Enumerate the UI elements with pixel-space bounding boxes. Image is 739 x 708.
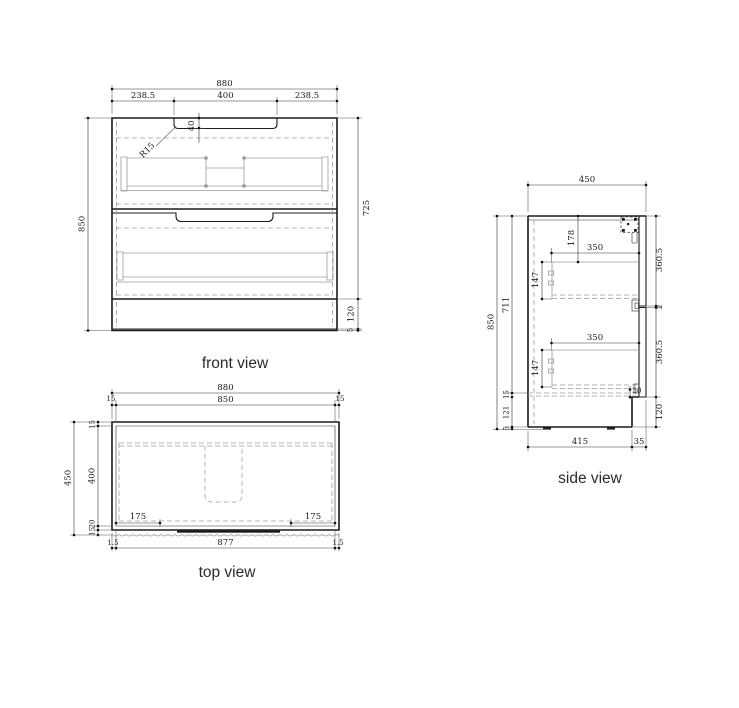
side-dim-drawer1-top: 178 [567, 230, 577, 246]
top-dim-edge-left: 15 [107, 395, 116, 403]
side-dim-kick-height: 121 [503, 406, 511, 419]
front-dim-total-width: 880 [216, 79, 232, 89]
side-dim-base-gap: 15 [503, 390, 511, 399]
side-dim-drawer1-depth: 350 [587, 243, 603, 253]
side-bracket-screw [627, 223, 629, 225]
side-drawer-runner-clip [549, 359, 554, 363]
side-upper-drawer-bottom [552, 295, 639, 299]
side-lower-drawer [552, 350, 639, 387]
side-view-label: side view [558, 470, 623, 487]
side-dim-drawer1-height: 147 [531, 272, 541, 288]
top-dim-inner-width: 850 [217, 395, 233, 405]
top-inner-wall [116, 426, 335, 526]
technical-drawing-page: 880 238.5 400 238.5 40 R15 850 725 120 5… [0, 0, 739, 708]
front-view: 880 238.5 400 238.5 40 R15 850 725 120 5… [78, 79, 373, 372]
side-panel-gap-bracket [632, 300, 639, 311]
side-bracket-screw [622, 229, 625, 232]
top-dim-edge-right: 15 [336, 395, 345, 403]
side-dim-total-height: 850 [487, 314, 497, 330]
side-bracket-body [632, 233, 637, 244]
side-dim-total-depth: 450 [579, 175, 595, 185]
side-foot [543, 427, 551, 430]
side-dim-drawer2-height: 147 [531, 360, 541, 376]
side-drawer-runner-clip [549, 271, 554, 275]
side-drawer-runner-clip [549, 281, 554, 285]
front-dim-body-height: 725 [362, 200, 372, 216]
side-dim-panel-gap: 2 [656, 305, 664, 309]
front-dim-foot-height: 5 [347, 328, 355, 332]
top-dim-bottom-width: 877 [217, 538, 233, 548]
top-handle-strip [177, 530, 280, 533]
front-dim-handle-width: 400 [217, 91, 233, 101]
front-dim-left-offset: 238.5 [131, 91, 155, 101]
front-lower-drawer-box [117, 252, 333, 282]
side-bracket-screw [634, 218, 637, 221]
top-dim-back-edge: 15 [89, 420, 97, 429]
front-drawer-clip [243, 185, 246, 188]
front-dim-handle-radius: R15 [138, 141, 157, 160]
top-dimension-points [74, 393, 339, 548]
top-front-wavy-edge [112, 535, 339, 537]
top-dim-front-edge: 15 [89, 527, 97, 536]
side-upper-drawer [552, 262, 639, 299]
top-dim-bottom-edge-right: 1.5 [332, 539, 343, 547]
side-dim-bottom-offset: 35 [634, 437, 645, 447]
side-lower-door-panel [639, 308, 646, 398]
front-view-label: front view [202, 355, 269, 372]
top-view: 880 850 15 15 450 15 400 20 15 175 175 1… [64, 383, 345, 581]
front-dim-right-offset: 238.5 [295, 91, 319, 101]
front-lower-drawer-top-edge [112, 213, 337, 222]
side-dim-foot-height: 5 [503, 426, 511, 430]
side-dim-lower-panel: 360.5 [655, 340, 665, 364]
front-dim-total-height: 850 [78, 216, 88, 232]
top-dimension-lines [74, 393, 339, 548]
top-extension-lines [70, 389, 339, 551]
side-bracket-screw [634, 229, 637, 232]
top-dim-bottom-edge-left: 1.5 [107, 539, 118, 547]
side-dim-base-height: 120 [655, 404, 665, 420]
side-bracket-screw [622, 218, 625, 221]
side-carcass-front [528, 216, 639, 397]
side-dim-clearance: 30 [633, 387, 642, 395]
side-view: 450 850 711 15 121 5 178 350 147 350 147… [487, 175, 666, 487]
top-dim-inner-depth: 400 [88, 468, 98, 484]
top-view-label: top view [199, 564, 257, 581]
side-lower-drawer-bottom [552, 385, 639, 389]
front-extension-lines [84, 85, 362, 331]
side-dim-inner-height: 711 [502, 297, 512, 313]
front-drawer-clip [205, 185, 208, 188]
vanity-cabinet-drawing: 880 238.5 400 238.5 40 R15 850 725 120 5… [0, 0, 739, 708]
front-dim-handle-depth: 40 [187, 121, 197, 132]
top-dim-total-depth: 450 [64, 470, 74, 486]
front-drawer-clip [205, 157, 208, 160]
top-sink-cutout [205, 446, 242, 502]
top-dim-total-width: 880 [217, 383, 233, 393]
top-hidden-lines [119, 443, 332, 521]
side-dim-drawer2-depth: 350 [587, 333, 603, 343]
front-upper-drawer-box [121, 157, 328, 191]
top-dim-hinge-right: 175 [305, 512, 321, 522]
side-foot [607, 427, 615, 430]
side-hidden-lines [528, 220, 639, 424]
top-dim-hinge-left: 175 [130, 512, 146, 522]
side-drawer-runner-clip [549, 369, 554, 373]
side-upper-door-panel [639, 216, 646, 306]
side-dim-upper-panel: 360.5 [655, 248, 665, 272]
front-drawer-clip [243, 157, 246, 160]
side-dim-bottom-depth: 415 [572, 437, 588, 447]
side-extension-lines [493, 181, 661, 451]
side-panel-gap-bracket-inner [635, 303, 639, 309]
front-dim-base-height: 120 [347, 306, 357, 322]
